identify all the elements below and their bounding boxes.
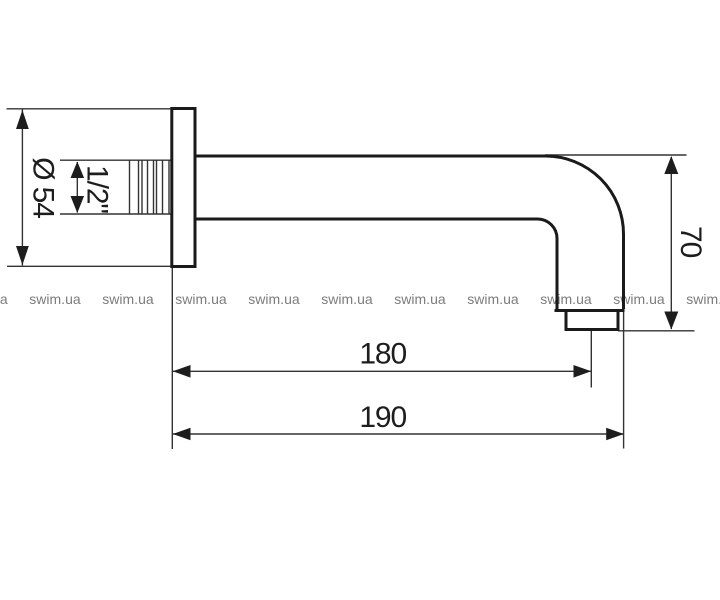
svg-text:1/2": 1/2" — [81, 165, 114, 213]
svg-text:swim.ua: swim.ua — [321, 291, 373, 307]
svg-text:swim.ua: swim.ua — [394, 291, 446, 307]
svg-text:swim.ua: swim.ua — [0, 291, 8, 307]
svg-text:swim.ua: swim.ua — [248, 291, 300, 307]
svg-text:190: 190 — [359, 401, 406, 434]
svg-text:swim.ua: swim.ua — [686, 291, 720, 307]
svg-text:swim.ua: swim.ua — [613, 291, 665, 307]
svg-text:swim.ua: swim.ua — [175, 291, 227, 307]
svg-text:swim.ua: swim.ua — [102, 291, 154, 307]
svg-text:180: 180 — [359, 338, 406, 371]
svg-text:swim.ua: swim.ua — [29, 291, 81, 307]
svg-text:70: 70 — [674, 226, 707, 258]
svg-text:swim.ua: swim.ua — [467, 291, 519, 307]
svg-text:Ø 54: Ø 54 — [27, 157, 60, 218]
svg-text:swim.ua: swim.ua — [540, 291, 592, 307]
